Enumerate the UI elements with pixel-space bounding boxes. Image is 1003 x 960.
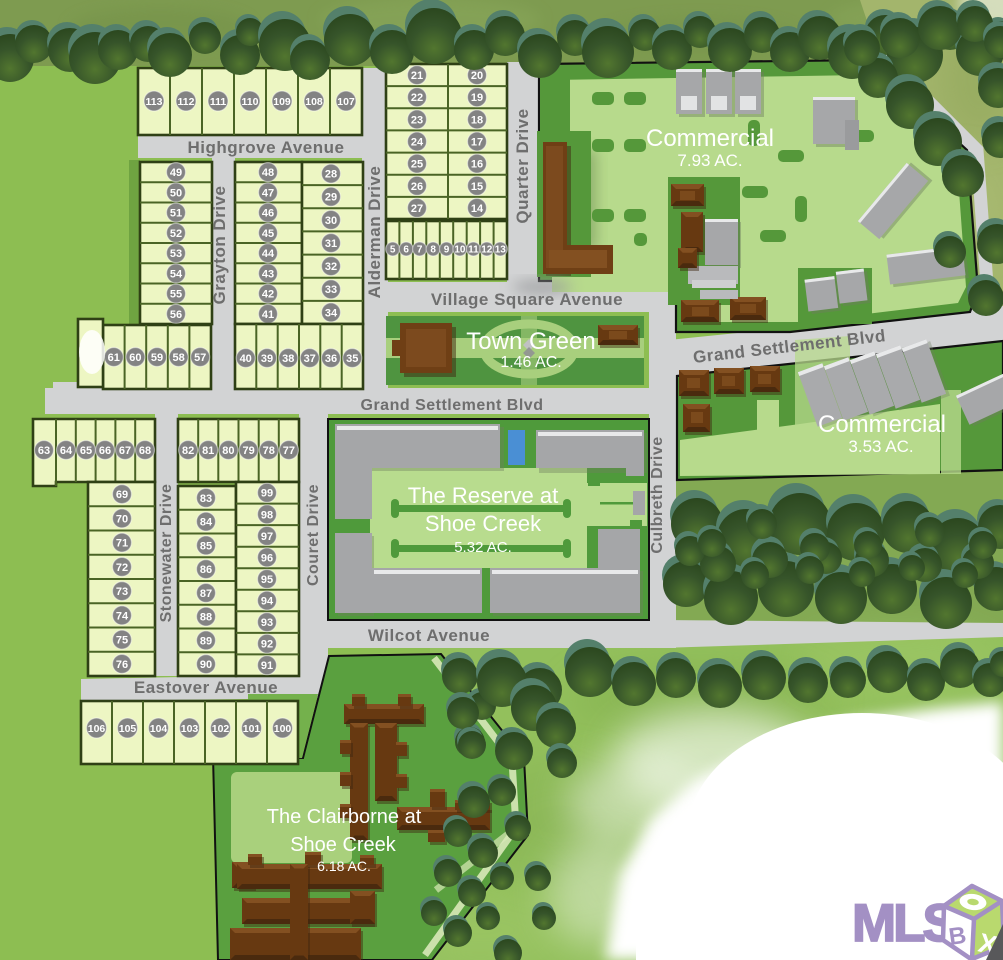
svg-text:66: 66	[99, 445, 111, 457]
svg-text:3.53 AC.: 3.53 AC.	[848, 437, 913, 456]
svg-text:105: 105	[119, 723, 137, 735]
svg-text:5: 5	[390, 245, 396, 256]
svg-text:5.32 AC.: 5.32 AC.	[454, 539, 512, 556]
svg-text:67: 67	[119, 445, 131, 457]
svg-text:50: 50	[170, 187, 182, 199]
svg-text:31: 31	[325, 238, 337, 250]
svg-text:57: 57	[194, 352, 206, 364]
svg-text:107: 107	[337, 96, 355, 108]
svg-text:Couret Drive: Couret Drive	[305, 484, 322, 586]
svg-text:61: 61	[108, 352, 120, 364]
svg-text:80: 80	[222, 445, 234, 457]
svg-text:Grayton Drive: Grayton Drive	[210, 186, 229, 305]
svg-text:109: 109	[273, 96, 291, 108]
svg-text:Town Green: Town Green	[466, 328, 595, 355]
svg-text:Wilcot Avenue: Wilcot Avenue	[368, 626, 490, 645]
svg-text:14: 14	[471, 203, 484, 215]
svg-text:54: 54	[170, 268, 183, 280]
svg-text:87: 87	[200, 588, 212, 600]
svg-text:64: 64	[60, 445, 73, 457]
svg-text:71: 71	[116, 538, 128, 550]
svg-text:97: 97	[261, 531, 273, 543]
svg-text:30: 30	[325, 215, 337, 227]
svg-text:Eastover Avenue: Eastover Avenue	[134, 678, 278, 697]
svg-text:19: 19	[471, 92, 483, 104]
svg-text:112: 112	[178, 96, 195, 108]
svg-text:25: 25	[411, 159, 423, 171]
svg-text:104: 104	[150, 723, 168, 735]
svg-text:13: 13	[495, 245, 507, 256]
svg-text:11: 11	[468, 245, 479, 256]
svg-text:Quarter Drive: Quarter Drive	[513, 108, 532, 223]
svg-text:100: 100	[274, 723, 292, 735]
svg-text:16: 16	[471, 159, 483, 171]
svg-text:73: 73	[116, 586, 128, 598]
svg-text:41: 41	[262, 309, 274, 321]
svg-text:Grand Settlement Blvd: Grand Settlement Blvd	[361, 397, 544, 414]
svg-text:77: 77	[283, 445, 295, 457]
svg-text:53: 53	[170, 248, 182, 260]
svg-text:68: 68	[139, 445, 151, 457]
svg-text:60: 60	[129, 352, 141, 364]
svg-text:10: 10	[454, 245, 466, 256]
svg-text:Village Square Avenue: Village Square Avenue	[431, 290, 623, 309]
svg-text:Shoe Creek: Shoe Creek	[425, 511, 542, 536]
svg-text:84: 84	[200, 517, 213, 529]
svg-text:32: 32	[325, 261, 337, 273]
svg-text:88: 88	[200, 612, 212, 624]
svg-text:24: 24	[411, 137, 424, 149]
svg-text:55: 55	[170, 289, 182, 301]
svg-text:70: 70	[116, 513, 128, 525]
svg-text:58: 58	[172, 352, 184, 364]
svg-text:12: 12	[481, 245, 493, 256]
svg-text:108: 108	[305, 96, 323, 108]
svg-text:6.18 AC.: 6.18 AC.	[317, 858, 371, 874]
svg-text:111: 111	[210, 96, 227, 108]
svg-text:Commercial: Commercial	[646, 125, 774, 152]
svg-text:82: 82	[182, 445, 194, 457]
svg-text:83: 83	[200, 493, 212, 505]
svg-text:29: 29	[325, 192, 337, 204]
svg-text:20: 20	[471, 70, 483, 82]
svg-text:96: 96	[261, 552, 273, 564]
svg-text:43: 43	[262, 268, 274, 280]
svg-text:85: 85	[200, 540, 212, 552]
svg-text:78: 78	[263, 445, 275, 457]
svg-text:95: 95	[261, 574, 273, 586]
svg-text:51: 51	[170, 208, 182, 220]
svg-text:23: 23	[411, 114, 423, 126]
svg-text:81: 81	[202, 445, 214, 457]
svg-text:74: 74	[116, 610, 129, 622]
svg-text:Alderman Drive: Alderman Drive	[365, 166, 384, 299]
svg-text:33: 33	[325, 284, 337, 296]
svg-text:22: 22	[411, 92, 423, 104]
svg-text:MLS: MLS	[852, 894, 957, 953]
svg-text:42: 42	[262, 289, 274, 301]
svg-text:65: 65	[80, 445, 92, 457]
svg-text:36: 36	[325, 353, 337, 365]
svg-text:110: 110	[242, 96, 259, 108]
svg-text:72: 72	[116, 562, 128, 574]
svg-text:18: 18	[471, 114, 483, 126]
svg-text:102: 102	[212, 723, 230, 735]
svg-text:17: 17	[471, 137, 483, 149]
svg-text:Commercial: Commercial	[818, 411, 946, 438]
svg-text:93: 93	[261, 617, 273, 629]
svg-text:92: 92	[261, 639, 273, 651]
svg-text:6: 6	[403, 245, 409, 256]
svg-text:The Reserve at: The Reserve at	[408, 483, 558, 508]
svg-text:49: 49	[170, 167, 182, 179]
svg-text:26: 26	[411, 181, 423, 193]
svg-text:37: 37	[304, 353, 316, 365]
svg-text:46: 46	[262, 208, 274, 220]
svg-text:76: 76	[116, 659, 128, 671]
svg-text:15: 15	[471, 181, 483, 193]
svg-text:Highgrove Avenue: Highgrove Avenue	[188, 138, 345, 157]
svg-text:7.93 AC.: 7.93 AC.	[677, 151, 742, 170]
svg-text:9: 9	[444, 245, 450, 256]
svg-text:56: 56	[170, 309, 182, 321]
svg-text:113: 113	[146, 96, 163, 108]
svg-text:75: 75	[116, 635, 128, 647]
svg-text:52: 52	[170, 228, 182, 240]
svg-text:44: 44	[262, 248, 275, 260]
svg-text:28: 28	[325, 169, 337, 181]
svg-text:86: 86	[200, 564, 212, 576]
svg-text:69: 69	[116, 489, 128, 501]
svg-text:7: 7	[417, 245, 423, 256]
svg-text:34: 34	[325, 307, 338, 319]
svg-text:Shoe Creek: Shoe Creek	[290, 834, 397, 856]
svg-text:48: 48	[262, 167, 274, 179]
svg-text:94: 94	[261, 596, 274, 608]
svg-text:1.46 AC.: 1.46 AC.	[500, 354, 561, 371]
svg-text:90: 90	[200, 659, 212, 671]
svg-text:103: 103	[181, 723, 199, 735]
svg-text:Stonewater Drive: Stonewater Drive	[158, 484, 175, 623]
svg-text:89: 89	[200, 635, 212, 647]
svg-text:99: 99	[261, 488, 273, 500]
svg-text:35: 35	[346, 353, 358, 365]
svg-text:63: 63	[38, 445, 50, 457]
svg-text:101: 101	[243, 723, 261, 735]
svg-text:38: 38	[282, 353, 294, 365]
svg-text:Culbreth Drive: Culbreth Drive	[649, 436, 666, 553]
svg-text:21: 21	[411, 70, 423, 82]
svg-text:39: 39	[261, 353, 273, 365]
svg-text:59: 59	[151, 352, 163, 364]
svg-text:47: 47	[262, 187, 274, 199]
svg-text:79: 79	[242, 445, 254, 457]
svg-text:98: 98	[261, 509, 273, 521]
svg-text:40: 40	[240, 353, 252, 365]
svg-text:27: 27	[411, 203, 423, 215]
svg-text:91: 91	[261, 660, 273, 672]
svg-text:106: 106	[88, 723, 106, 735]
svg-text:The Clairborne at: The Clairborne at	[267, 806, 422, 828]
svg-text:45: 45	[262, 228, 274, 240]
svg-text:8: 8	[430, 245, 436, 256]
